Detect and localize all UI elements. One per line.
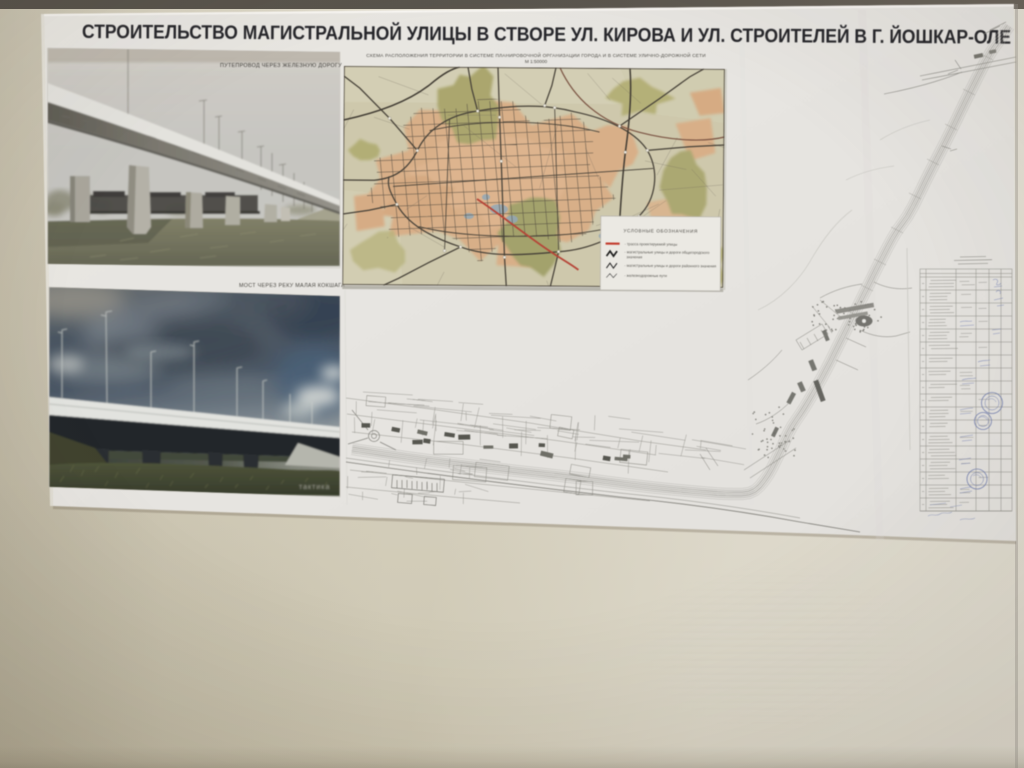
svg-text:- трасса проектируемой улицы: - трасса проектируемой улицы — [625, 242, 678, 246]
svg-text:ПУТЕПРОВОД ЧЕРЕЗ ЖЕЛЕЗНУЮ ДОРО: ПУТЕПРОВОД ЧЕРЕЗ ЖЕЛЕЗНУЮ ДОРОГУ — [220, 63, 342, 69]
svg-text:- железнодорожные пути: - железнодорожные пути — [624, 274, 667, 278]
svg-text:М 1:50000: М 1:50000 — [525, 59, 548, 64]
svg-text:- магистральные улицы и дороги: - магистральные улицы и дороги общегород… — [625, 250, 710, 255]
svg-text:УСЛОВНЫЕ ОБОЗНАЧЕНИЯ: УСЛОВНЫЕ ОБОЗНАЧЕНИЯ — [623, 228, 697, 234]
svg-text:СХЕМА РАСПОЛОЖЕНИЯ ТЕРРИТОРИИ: СХЕМА РАСПОЛОЖЕНИЯ ТЕРРИТОРИИ В СИСТЕМЕ … — [366, 51, 706, 58]
svg-text:тактика: тактика — [299, 484, 330, 491]
svg-text:- магистральные улицы и дороги: - магистральные улицы и дороги районного… — [624, 264, 716, 269]
svg-text:МОСТ ЧЕРЕЗ РЕКУ МАЛАЯ КОКШАГА: МОСТ ЧЕРЕЗ РЕКУ МАЛАЯ КОКШАГА — [239, 283, 345, 289]
svg-text:значения: значения — [626, 255, 642, 259]
